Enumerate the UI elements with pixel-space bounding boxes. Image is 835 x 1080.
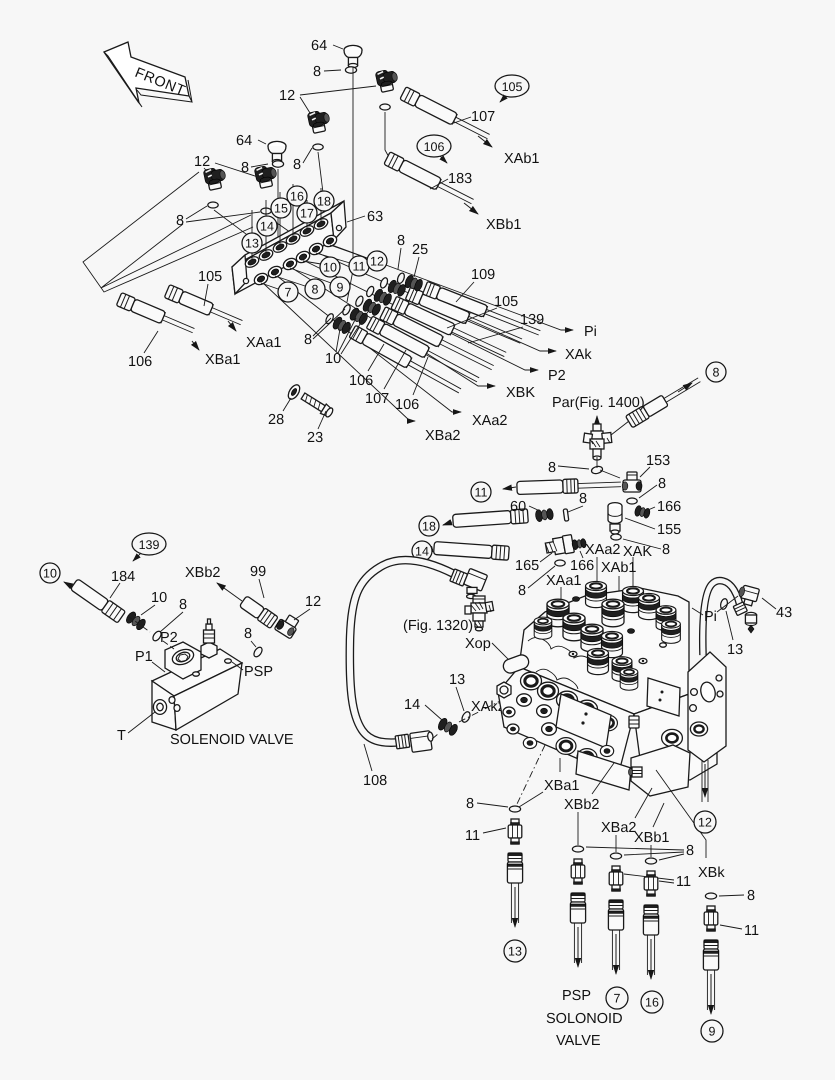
svg-text:12: 12 (305, 594, 321, 610)
svg-text:28: 28 (268, 412, 284, 428)
svg-text:18: 18 (422, 520, 436, 534)
svg-text:8: 8 (179, 597, 187, 613)
svg-text:XBb2: XBb2 (564, 797, 599, 813)
svg-text:XBa1: XBa1 (205, 352, 240, 368)
svg-text:T: T (117, 728, 126, 744)
svg-text:SOLONOID: SOLONOID (546, 1011, 623, 1027)
svg-text:PSP: PSP (244, 664, 273, 680)
svg-text:99: 99 (250, 564, 266, 580)
svg-text:8: 8 (579, 491, 587, 507)
svg-text:13: 13 (449, 672, 465, 688)
svg-text:XAk: XAk (565, 347, 592, 363)
svg-text:11: 11 (475, 486, 488, 500)
svg-text:Par(Fig. 1400): Par(Fig. 1400) (552, 395, 645, 411)
svg-text:XBa2: XBa2 (601, 820, 636, 836)
svg-text:P1: P1 (135, 649, 153, 665)
svg-text:SOLENOID VALVE: SOLENOID VALVE (170, 732, 294, 748)
svg-text:12: 12 (279, 88, 295, 104)
svg-text:9: 9 (709, 1025, 716, 1039)
svg-text:105: 105 (502, 80, 523, 94)
svg-text:10: 10 (151, 590, 167, 606)
svg-text:8: 8 (713, 366, 720, 380)
svg-text:107: 107 (471, 109, 495, 125)
svg-text:Pi: Pi (704, 609, 717, 625)
svg-text:106: 106 (349, 373, 373, 389)
svg-text:PSP: PSP (562, 988, 591, 1004)
svg-text:109: 109 (471, 267, 495, 283)
svg-text:14: 14 (260, 220, 274, 234)
svg-text:166: 166 (657, 499, 681, 515)
svg-text:Pi: Pi (584, 324, 597, 340)
svg-text:18: 18 (317, 195, 331, 209)
svg-text:8: 8 (313, 64, 321, 80)
svg-text:XAb1: XAb1 (504, 151, 539, 167)
svg-text:17: 17 (300, 207, 314, 221)
svg-text:8: 8 (312, 283, 319, 297)
svg-text:106: 106 (128, 354, 152, 370)
svg-text:8: 8 (518, 583, 526, 599)
svg-text:8: 8 (658, 476, 666, 492)
svg-text:155: 155 (657, 522, 681, 538)
svg-text:9: 9 (337, 281, 344, 295)
svg-text:XBk: XBk (698, 865, 725, 881)
svg-text:105: 105 (198, 269, 222, 285)
svg-text:8: 8 (466, 796, 474, 812)
svg-text:23: 23 (307, 430, 323, 446)
svg-text:183: 183 (448, 171, 472, 187)
svg-text:63: 63 (367, 209, 383, 225)
svg-text:12: 12 (370, 255, 384, 269)
svg-text:10: 10 (43, 567, 57, 581)
svg-text:13: 13 (727, 642, 743, 658)
svg-text:8: 8 (293, 157, 301, 173)
svg-text:8: 8 (747, 888, 755, 904)
svg-text:11: 11 (744, 923, 759, 939)
svg-text:60: 60 (510, 499, 526, 515)
svg-text:XAa2: XAa2 (472, 413, 507, 429)
svg-text:12: 12 (194, 154, 210, 170)
svg-text:107: 107 (365, 391, 389, 407)
svg-text:64: 64 (311, 38, 327, 54)
svg-text:8: 8 (686, 843, 694, 859)
svg-text:XAa1: XAa1 (546, 573, 581, 589)
svg-text:XAb1: XAb1 (601, 560, 636, 576)
svg-text:P2: P2 (548, 368, 566, 384)
svg-text:13: 13 (508, 945, 522, 959)
svg-text:14: 14 (404, 697, 420, 713)
svg-text:166: 166 (570, 558, 594, 574)
svg-text:10: 10 (325, 351, 341, 367)
svg-text:43: 43 (776, 605, 792, 621)
svg-text:25: 25 (412, 242, 428, 258)
svg-text:184: 184 (111, 569, 135, 585)
svg-text:XBa2: XBa2 (425, 428, 460, 444)
svg-text:139: 139 (139, 538, 160, 552)
svg-text:XAa1: XAa1 (246, 335, 281, 351)
svg-text:XBb1: XBb1 (486, 217, 521, 233)
svg-text:10: 10 (323, 261, 337, 275)
svg-text:64: 64 (236, 133, 252, 149)
svg-text:16: 16 (645, 996, 659, 1010)
svg-text:VALVE: VALVE (556, 1033, 601, 1049)
svg-text:106: 106 (395, 397, 419, 413)
svg-text:13: 13 (245, 237, 259, 251)
svg-text:XAa2: XAa2 (585, 542, 620, 558)
svg-text:XBa1: XBa1 (544, 778, 579, 794)
svg-text:105: 105 (494, 294, 518, 310)
svg-text:XBK: XBK (506, 385, 535, 401)
svg-text:11: 11 (353, 260, 366, 274)
svg-text:11: 11 (676, 874, 691, 890)
svg-text:108: 108 (363, 773, 387, 789)
svg-text:8: 8 (244, 626, 252, 642)
svg-text:16: 16 (290, 190, 304, 204)
svg-text:XBb1: XBb1 (634, 830, 669, 846)
svg-text:P2: P2 (160, 630, 178, 646)
svg-text:7: 7 (614, 992, 621, 1006)
svg-text:14: 14 (415, 545, 429, 559)
svg-text:106: 106 (424, 140, 445, 154)
svg-text:12: 12 (698, 816, 712, 830)
svg-text:7: 7 (285, 286, 292, 300)
svg-text:11: 11 (465, 828, 480, 844)
svg-text:XBb2: XBb2 (185, 565, 220, 581)
svg-text:(Fig. 1320): (Fig. 1320) (403, 618, 473, 634)
svg-text:8: 8 (548, 460, 556, 476)
svg-text:8: 8 (662, 542, 670, 558)
svg-text:15: 15 (274, 202, 288, 216)
svg-text:8: 8 (304, 332, 312, 348)
svg-text:Xop: Xop (465, 636, 491, 652)
svg-text:165: 165 (515, 558, 539, 574)
svg-text:XAK: XAK (623, 544, 652, 560)
svg-text:139: 139 (520, 312, 544, 328)
svg-text:153: 153 (646, 453, 670, 469)
svg-text:8: 8 (397, 233, 405, 249)
